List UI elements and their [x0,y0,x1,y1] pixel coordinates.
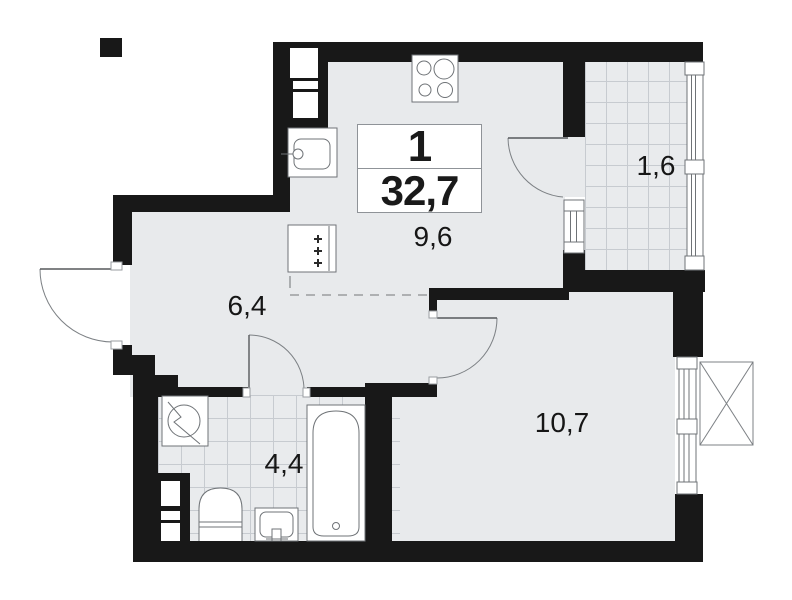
rooms-count-label: 1 [358,125,481,169]
toilet-icon [199,488,242,541]
entrance-door-swing-icon [40,262,122,349]
hallway-area-label: 6,4 [228,290,267,322]
ac-basket-icon [700,362,753,445]
living-room-door-swing-icon [429,311,497,384]
kitchen-sink-icon [281,128,337,177]
washing-machine-icon [162,396,208,446]
bathtub-icon [307,405,365,541]
bathroom-door-swing-icon [243,335,310,397]
unit-info-card: 1 32,7 [357,124,482,213]
bathroom-area-label: 4,4 [265,448,304,480]
living-room-area-label: 10,7 [535,407,590,439]
balcony-glazing-icon [685,62,704,270]
kitchen-window-icon [564,200,584,253]
kitchen-area-label: 9,6 [414,221,453,253]
fridge-icon [288,225,336,272]
living-room-window-icon [677,357,697,494]
balcony-area-label: 1,6 [637,150,676,182]
wash-basin-icon [255,508,298,541]
balcony-door-swing-icon [508,138,568,197]
stove-icon [412,55,458,102]
total-area-label: 32,7 [358,169,481,213]
dashed-zone-boundary [290,276,430,295]
floor-plan: 1 32,7 9,6 6,4 1,6 4,4 10,7 [0,0,792,600]
